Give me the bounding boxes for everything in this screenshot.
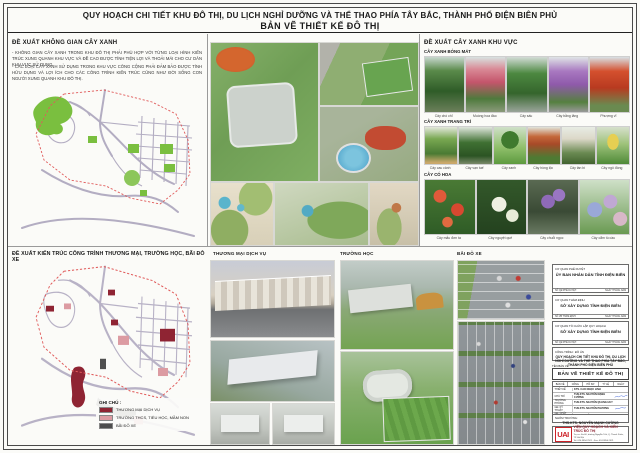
park-render-field xyxy=(319,42,419,106)
commercial-render-1 xyxy=(210,260,335,338)
team-leader-box: NHÓM TRƯỞNG: THS.KTS. NGUYỄN MẠNH CƯỜNG xyxy=(552,414,629,423)
organizing-agency-label: CƠ QUAN TỔ CHỨC LẬP QUY HOẠCH xyxy=(555,324,626,328)
legend-label: TRƯỜNG THCS, TIỂU HỌC, MẦM NON xyxy=(116,415,189,420)
appraisal-note-right: NGÀY THÁNG NĂM xyxy=(605,316,626,318)
approval-agency-box: CƠ QUAN PHÊ DUYỆT ỦY BAN NHÂN DÂN TỈNH Đ… xyxy=(552,264,629,293)
legend-label: BÃI ĐỖ XE xyxy=(116,423,136,428)
tree-item: Cây xanh xyxy=(493,126,525,170)
legend-label: THƯƠNG MẠI DỊCH VỤ xyxy=(116,407,160,412)
tree-caption: Cây bằng lăng xyxy=(548,114,587,118)
row-role: TRƯỞNG PHÒNG xyxy=(553,399,573,405)
school-building xyxy=(348,284,413,313)
legend-title: GHI CHÚ : xyxy=(99,400,207,405)
signature-icon xyxy=(614,406,628,411)
signature-cell xyxy=(614,387,628,392)
approval-note-right: NGÀY THÁNG NĂM xyxy=(605,290,626,292)
tree-photo-tan-bi xyxy=(561,126,595,165)
tree-item: Cây tần bì xyxy=(561,126,593,170)
tree-photo-van-tue xyxy=(458,126,492,165)
organizing-note-left: SỐ QĐ PHÊ DUYỆT: xyxy=(555,342,577,344)
appraisal-note: SỐ VB THẨM ĐỊNH: NGÀY THÁNG NĂM xyxy=(553,314,628,318)
tree-photo-muong-hoa-dao xyxy=(465,56,506,113)
approval-agency-label: CƠ QUAN PHÊ DUYỆT xyxy=(555,267,626,271)
school-render-1 xyxy=(340,260,454,350)
row-role: THIẾT KẾ xyxy=(553,388,573,391)
project-box: CÔNG TRÌNH : ĐỒ ÁN QUY HOẠCH CHI TIẾT KH… xyxy=(552,347,629,361)
tree-photo-nguyet-que xyxy=(476,179,528,235)
tree-item: Cây bằng lăng xyxy=(548,56,587,118)
playground-area xyxy=(216,47,255,72)
tree-row-flowering: Cây mẫu đơn ta Cây nguyệt quế Cây chuỗi … xyxy=(424,179,628,240)
school-pitch xyxy=(382,396,450,443)
football-pitch xyxy=(362,57,413,97)
park-masterplan-2 xyxy=(274,182,369,246)
tree-caption: Muồng hoa đào xyxy=(465,114,504,118)
tree-photo-xanh xyxy=(493,126,527,165)
tree-item: Cây ngô đồng xyxy=(596,126,628,170)
school-render-2 xyxy=(340,351,454,445)
legend-swatch-commercial xyxy=(99,407,113,414)
appraisal-agency-box: CƠ QUAN THẨM ĐỊNH SỞ XÂY DỰNG TỈNH ĐIỆN … xyxy=(552,295,629,319)
tree-caption: Cây chuỗi ngọc xyxy=(527,236,577,240)
planning-board-sheet: QUY HOẠCH CHI TIẾT KHU ĐÔ THỊ, DU LỊCH N… xyxy=(0,0,640,453)
row-person: KTS. CAO NGỌC LINH xyxy=(573,388,614,391)
tree-photo-bang-lang xyxy=(548,56,589,113)
tree-caption: Cây sấu xyxy=(506,114,545,118)
board-subtitle: BẢN VẼ THIẾT KẾ ĐÔ THỊ xyxy=(8,21,632,31)
commercial-render-4 xyxy=(272,403,335,445)
divider-left-center xyxy=(207,34,208,246)
legend-item-commercial: THƯƠNG MẠI DỊCH VỤ xyxy=(99,407,207,414)
gym-hall xyxy=(415,291,443,310)
building-massing xyxy=(284,415,323,432)
tree-item: Cây hồng lộc xyxy=(527,126,559,170)
appraisal-note-left: SỐ VB THẨM ĐỊNH: xyxy=(555,316,576,318)
tree-row-decorative: Cây cau cảnh Cây vạn tuế Cây xanh Cây hồ… xyxy=(424,126,628,170)
park-masterplan-1 xyxy=(210,182,274,246)
institute-box: UAI VIỆN QUY HOẠCH VÀ KIẾN TRÚC ĐÔ THỊ T… xyxy=(552,426,629,443)
play-surface xyxy=(365,126,406,150)
commercial-render-3 xyxy=(210,403,270,445)
tree-photo-chuoi-ngoc xyxy=(527,179,579,235)
divider-center-right xyxy=(419,34,420,246)
commercial-render-2 xyxy=(210,340,335,402)
tree-caption: Phượng vĩ xyxy=(589,114,628,118)
tree-group1-title: CÂY XANH BÓNG MÁT xyxy=(424,49,471,54)
legend-swatch-parking xyxy=(99,423,113,430)
tree-photo-mau-don xyxy=(424,179,476,235)
green-space-heading: ĐỀ XUẤT KHÔNG GIAN CÂY XANH xyxy=(12,40,117,46)
approval-agency-name: ỦY BAN NHÂN DÂN TỈNH ĐIỆN BIÊN xyxy=(555,272,626,277)
institute-name: VIỆN QUY HOẠCH VÀ KIẾN TRÚC ĐÔ THỊ xyxy=(574,426,627,433)
title-divider xyxy=(8,32,632,33)
tree-caption: Cây vạn tuế xyxy=(458,166,490,170)
institute-address: Trụ sở: Km10, đường Nguyễn Trãi, Q. Than… xyxy=(574,434,627,439)
signature-cell xyxy=(614,406,628,411)
tree-section-heading: ĐỀ XUẤT CÂY XANH KHU VỰC xyxy=(424,40,518,46)
row-person: THS.KTS. NGUYỄN PHƯƠNG xyxy=(573,407,614,410)
uai-logo: UAI xyxy=(555,427,572,442)
project-label: CÔNG TRÌNH : ĐỒ ÁN xyxy=(555,350,626,354)
tree-caption: Cây xanh xyxy=(493,166,525,170)
tree-item: Phượng vĩ xyxy=(589,56,628,118)
building-massing xyxy=(221,415,258,432)
row-person: THS.KTS. NGUYỄN MẠNH CƯỜNG xyxy=(573,393,614,399)
tree-caption: Cây tần bì xyxy=(561,166,593,170)
tree-item: Cây vạn tuế xyxy=(458,126,490,170)
tree-caption: Cây cau cảnh xyxy=(424,166,456,170)
team-leader-label: NHÓM TRƯỞNG: xyxy=(555,416,626,420)
tree-item: Cây sấu xyxy=(506,56,545,118)
commercial-column-heading: THƯƠNG MẠI DỊCH VỤ xyxy=(213,251,266,256)
tree-photo-ngo-dong xyxy=(596,126,630,165)
tree-photo-hong-loc xyxy=(527,126,561,165)
tree-caption: Cây nguyệt quế xyxy=(476,236,526,240)
parking-column-heading: BÃI ĐỖ XE xyxy=(457,251,482,256)
legend-item-school: TRƯỜNG THCS, TIỂU HỌC, MẦM NON xyxy=(99,415,207,422)
splash-pool xyxy=(336,143,371,174)
organizing-note-right: NGÀY THÁNG NĂM xyxy=(605,342,626,344)
glass-facade xyxy=(215,275,331,311)
school-column-heading: TRƯỜNG HỌC xyxy=(340,251,374,256)
park-masterplan-3 xyxy=(369,182,419,246)
green-space-paragraph-2: - CÁC LOẠI CÂY XANH SỬ DỤNG TRONG KHU VỰ… xyxy=(12,64,202,82)
tree-item: Cây chuỗi ngọc xyxy=(527,179,577,240)
landuse-map-green xyxy=(12,86,205,244)
parking-photo-2 xyxy=(457,321,545,445)
organizing-note: SỐ QĐ PHÊ DUYỆT: NGÀY THÁNG NĂM xyxy=(553,340,628,344)
tree-group3-title: CÂY CÓ HOA xyxy=(424,172,451,177)
sports-court xyxy=(226,82,298,149)
row-role: GĐ. KỸ THUẬT xyxy=(553,406,573,412)
park-render-playground xyxy=(319,106,419,182)
organizing-agency-box: CƠ QUAN TỔ CHỨC LẬP QUY HOẠCH SỞ XÂY DỰN… xyxy=(552,321,629,345)
legend-item-parking: BÃI ĐỖ XE xyxy=(99,423,207,430)
drawing-name: BẢN VẼ THIẾT KẾ ĐÔ THỊ xyxy=(552,368,629,380)
tree-group2-title: CÂY XANH TRANG TRÍ xyxy=(424,119,471,124)
tree-item: Cây nguyệt quế xyxy=(476,179,526,240)
signature-icon xyxy=(614,394,628,399)
approval-note: SỐ QĐ PHÊ DUYỆT: NGÀY THÁNG NĂM xyxy=(553,288,628,292)
tree-photo-sau xyxy=(506,56,547,113)
tree-item: Cây cau cảnh xyxy=(424,126,456,170)
tree-row-shade: Cây chò chỉ Muồng hoa đào Cây sấu Cây bằ… xyxy=(424,56,628,118)
row-person: THS.KTS. NGUYỄN QUANG HUY xyxy=(573,401,614,404)
legend-swatch-school xyxy=(99,415,113,422)
tree-item: Cây cẩm tú cầu xyxy=(579,179,629,240)
building-massing xyxy=(228,351,318,386)
tree-caption: Cây ngô đồng xyxy=(596,166,628,170)
tree-item: Cây mẫu đơn ta xyxy=(424,179,474,240)
organizing-agency-name: SỞ XÂY DỰNG TỈNH ĐIỆN BIÊN xyxy=(555,329,626,334)
tree-caption: Cây cẩm tú cầu xyxy=(579,236,629,240)
appraisal-agency-label: CƠ QUAN THẨM ĐỊNH xyxy=(555,298,626,302)
tree-item: Muồng hoa đào xyxy=(465,56,504,118)
tree-photo-cam-tu-cau xyxy=(579,179,631,235)
appraisal-agency-name: SỞ XÂY DỰNG TỈNH ĐIỆN BIÊN xyxy=(555,303,626,308)
row-role: CHỦ TRÌ xyxy=(553,395,573,398)
tree-item: Cây chò chỉ xyxy=(424,56,463,118)
board-title: QUY HOẠCH CHI TIẾT KHU ĐÔ THỊ, DU LỊCH N… xyxy=(8,11,632,20)
institute-text: VIỆN QUY HOẠCH VÀ KIẾN TRÚC ĐÔ THỊ Trụ s… xyxy=(574,426,627,443)
approval-note-left: SỐ QĐ PHÊ DUYỆT: xyxy=(555,290,577,292)
map-legend: GHI CHÚ : THƯƠNG MẠI DỊCH VỤ TRƯỜNG THCS… xyxy=(96,398,210,431)
institute-phone: Tel: 024.3854.2521 - Fax: 024.3854.2521 xyxy=(574,440,627,443)
park-render-overview xyxy=(210,42,319,182)
tree-photo-cau-canh xyxy=(424,126,458,165)
divider-horizontal xyxy=(8,246,632,247)
parking-photo-1 xyxy=(457,260,545,320)
tree-photo-phuong-vi xyxy=(589,56,630,113)
tree-photo-cho-chi xyxy=(424,56,465,113)
signature-cell xyxy=(614,393,628,398)
tree-caption: Cây chò chỉ xyxy=(424,114,463,118)
tree-caption: Cây mẫu đơn ta xyxy=(424,236,474,240)
tree-caption: Cây hồng lộc xyxy=(527,166,559,170)
signature-cell xyxy=(614,400,628,405)
